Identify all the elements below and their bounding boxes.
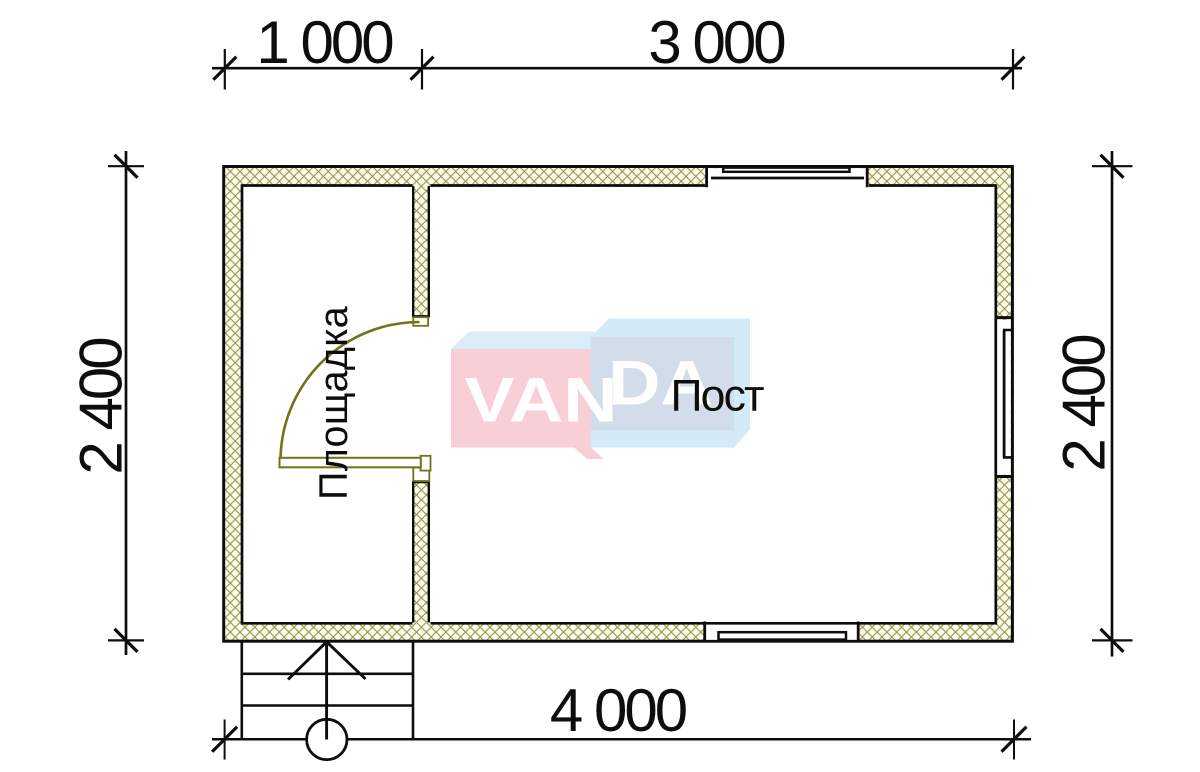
svg-text:Пост: Пост (671, 372, 765, 421)
svg-text:3 000: 3 000 (648, 9, 785, 76)
svg-text:1 000: 1 000 (256, 9, 393, 76)
svg-text:2 400: 2 400 (1051, 335, 1118, 472)
svg-text:4 000: 4 000 (550, 677, 687, 744)
svg-text:VAN: VAN (465, 366, 618, 436)
svg-text:Площадка: Площадка (312, 306, 356, 500)
svg-text:2 400: 2 400 (68, 338, 135, 475)
